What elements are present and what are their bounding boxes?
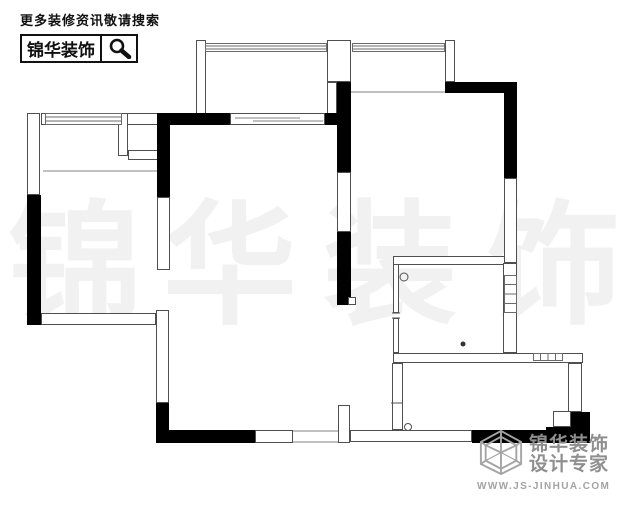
partition-wall [338, 173, 351, 232]
partition-wall [42, 314, 156, 325]
search-icon [100, 36, 136, 61]
partition-wall [446, 41, 455, 82]
window [353, 44, 445, 52]
header-brand-name: 锦华装饰 [22, 36, 100, 61]
bearing-wall [337, 82, 351, 172]
bearing-wall [445, 82, 517, 93]
header-tagline: 更多装修资讯敬请搜索 [20, 10, 160, 29]
cube-logo-icon [477, 430, 525, 480]
partition-wall [158, 198, 170, 270]
partition-wall [328, 83, 337, 114]
bearing-wall [156, 430, 255, 443]
drain-symbol [405, 424, 412, 431]
partition-wall [394, 257, 505, 265]
partition-wall [157, 311, 169, 403]
window [46, 114, 122, 125]
partition-wall [505, 179, 517, 263]
bearing-wall [504, 93, 517, 178]
partition-wall [339, 406, 350, 443]
partition-wall [197, 41, 206, 114]
watermark-char: 华 [163, 192, 297, 341]
bearing-wall [27, 195, 41, 325]
bearing-wall [337, 232, 351, 305]
footer-url: WWW.JS-JINHUA.COM [477, 481, 623, 492]
window [206, 44, 327, 52]
partition-wall [351, 431, 472, 442]
wall-cap [554, 412, 571, 427]
partition-wall [256, 431, 293, 443]
header-brand-box: 锦华装饰 [20, 34, 138, 63]
partition-wall [28, 114, 40, 195]
partition-wall [328, 41, 351, 82]
partition-wall [394, 265, 399, 313]
footer-brand-line1: 锦华装饰 [529, 435, 609, 455]
partition-wall [394, 319, 399, 353]
bearing-wall [157, 113, 170, 197]
partition-wall [231, 114, 325, 125]
drain-dot [461, 342, 466, 347]
partition-wall [129, 151, 158, 160]
footer-brand-line2: 设计专家 [529, 455, 609, 475]
partition-wall [393, 364, 403, 430]
footer-logo: 锦华装饰 设计专家 WWW.JS-JINHUA.COM [477, 430, 623, 492]
wall-cap [349, 298, 356, 305]
header-logo: 更多装修资讯敬请搜索 锦华装饰 [20, 10, 160, 63]
partition-wall [569, 364, 582, 412]
